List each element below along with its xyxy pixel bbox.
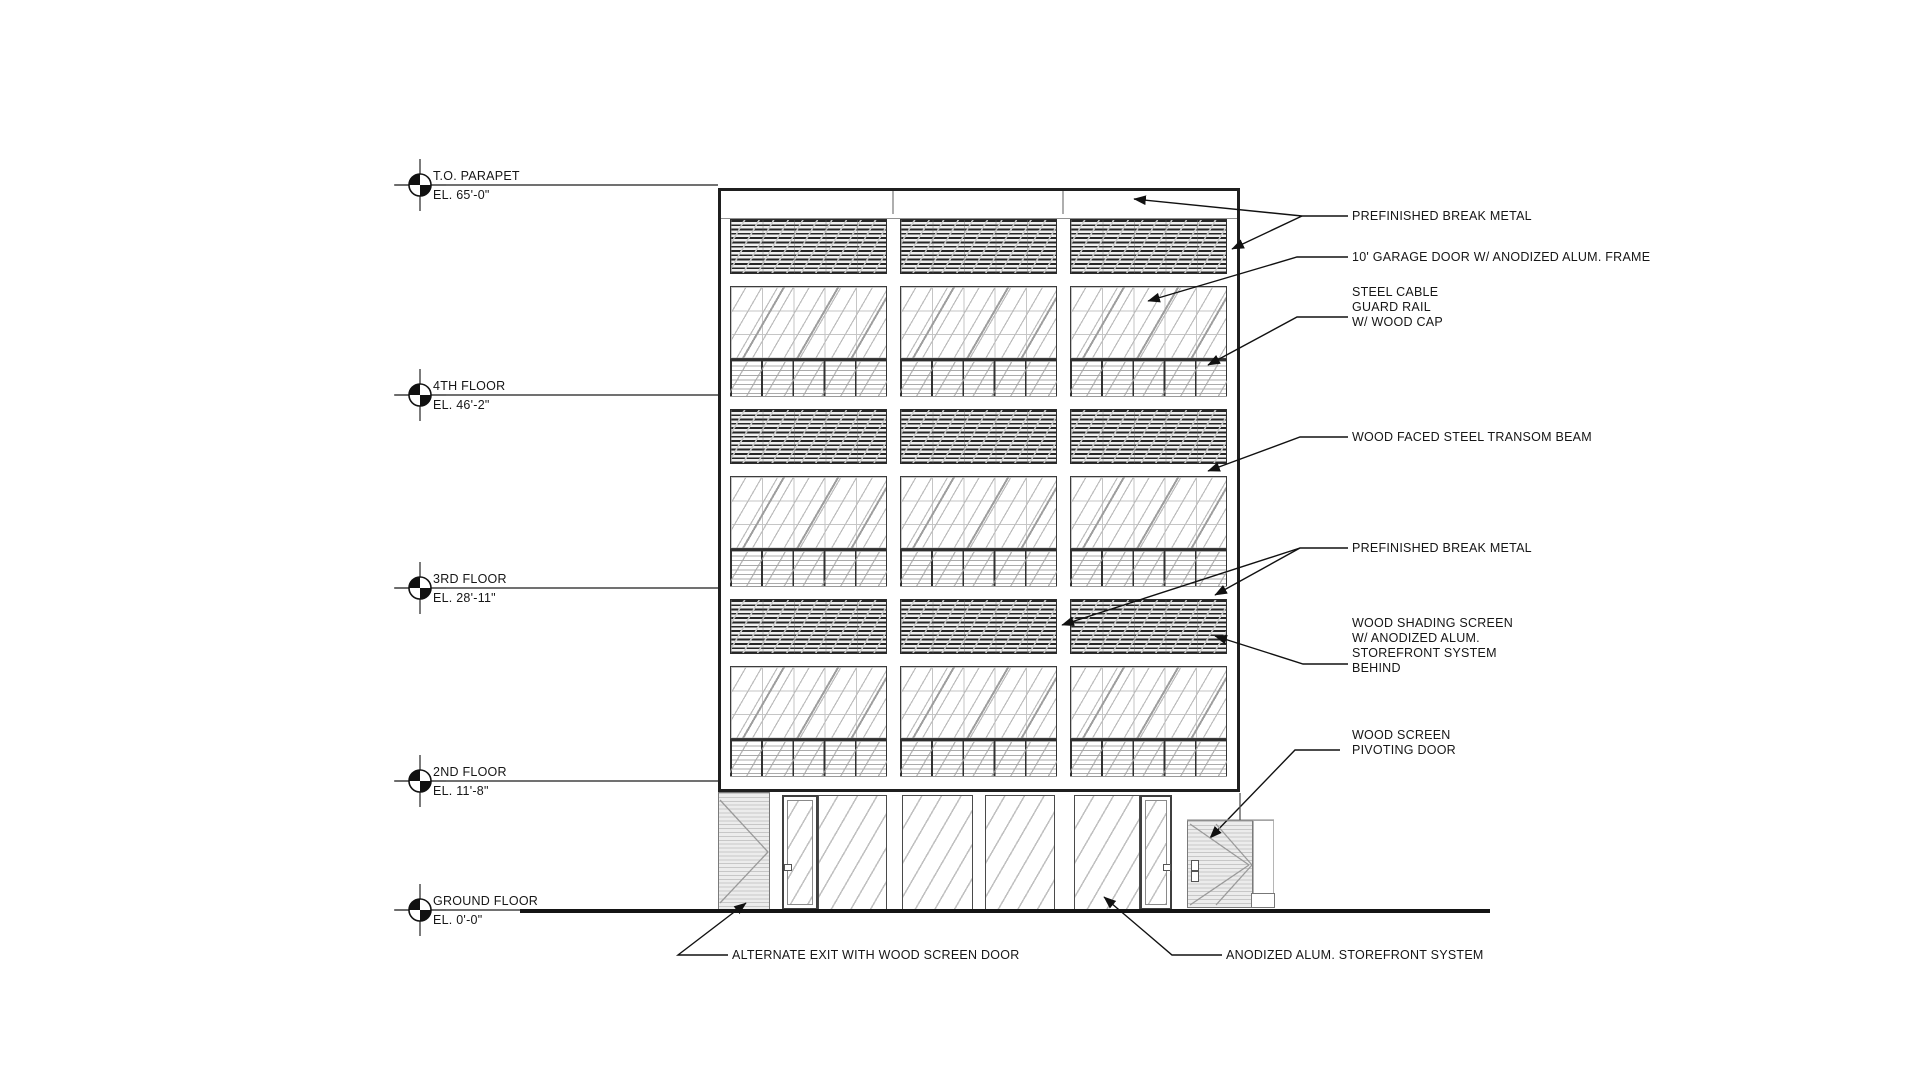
datum-elevation-4th: EL. 46'-2" — [433, 398, 490, 412]
datum-label-ground: GROUND FLOOR — [433, 894, 538, 908]
callout-break-metal-top: PREFINISHED BREAK METAL — [1352, 209, 1532, 224]
datum-label-4th: 4TH FLOOR — [433, 379, 505, 393]
callout-storefront: ANODIZED ALUM. STOREFRONT SYSTEM — [1226, 948, 1484, 963]
datum-symbols — [394, 159, 446, 936]
datum-elevation-ground: EL. 0'-0" — [433, 913, 482, 927]
leader-lines-and-datums — [0, 0, 1920, 1080]
floor-datum-lines — [395, 185, 718, 910]
datum-elevation-parapet: EL. 65'-0" — [433, 188, 490, 202]
callout-garage-door: 10' GARAGE DOOR W/ ANODIZED ALUM. FRAME — [1352, 250, 1650, 265]
parapet-joint-ticks — [893, 191, 1063, 214]
callout-alternate-exit: ALTERNATE EXIT WITH WOOD SCREEN DOOR — [732, 948, 1020, 963]
datum-label-parapet: T.O. PARAPET — [433, 169, 520, 183]
elevation-drawing-sheet: T.O. PARAPET EL. 65'-0" 4TH FLOOR EL. 46… — [0, 0, 1920, 1080]
callout-break-metal-mid: PREFINISHED BREAK METAL — [1352, 541, 1532, 556]
callout-pivot-door: WOOD SCREEN PIVOTING DOOR — [1352, 728, 1456, 758]
datum-label-3rd: 3RD FLOOR — [433, 572, 507, 586]
datum-label-2nd: 2ND FLOOR — [433, 765, 507, 779]
datum-elevation-3rd: EL. 28'-11" — [433, 591, 496, 605]
datum-elevation-2nd: EL. 11'-8" — [433, 784, 489, 798]
callout-leaders — [678, 199, 1348, 955]
wood-screen-chevrons — [720, 800, 1274, 905]
callout-transom-beam: WOOD FACED STEEL TRANSOM BEAM — [1352, 430, 1592, 445]
callout-guard-rail: STEEL CABLE GUARD RAIL W/ WOOD CAP — [1352, 285, 1443, 330]
callout-shading-screen: WOOD SHADING SCREEN W/ ANODIZED ALUM. ST… — [1352, 616, 1513, 676]
